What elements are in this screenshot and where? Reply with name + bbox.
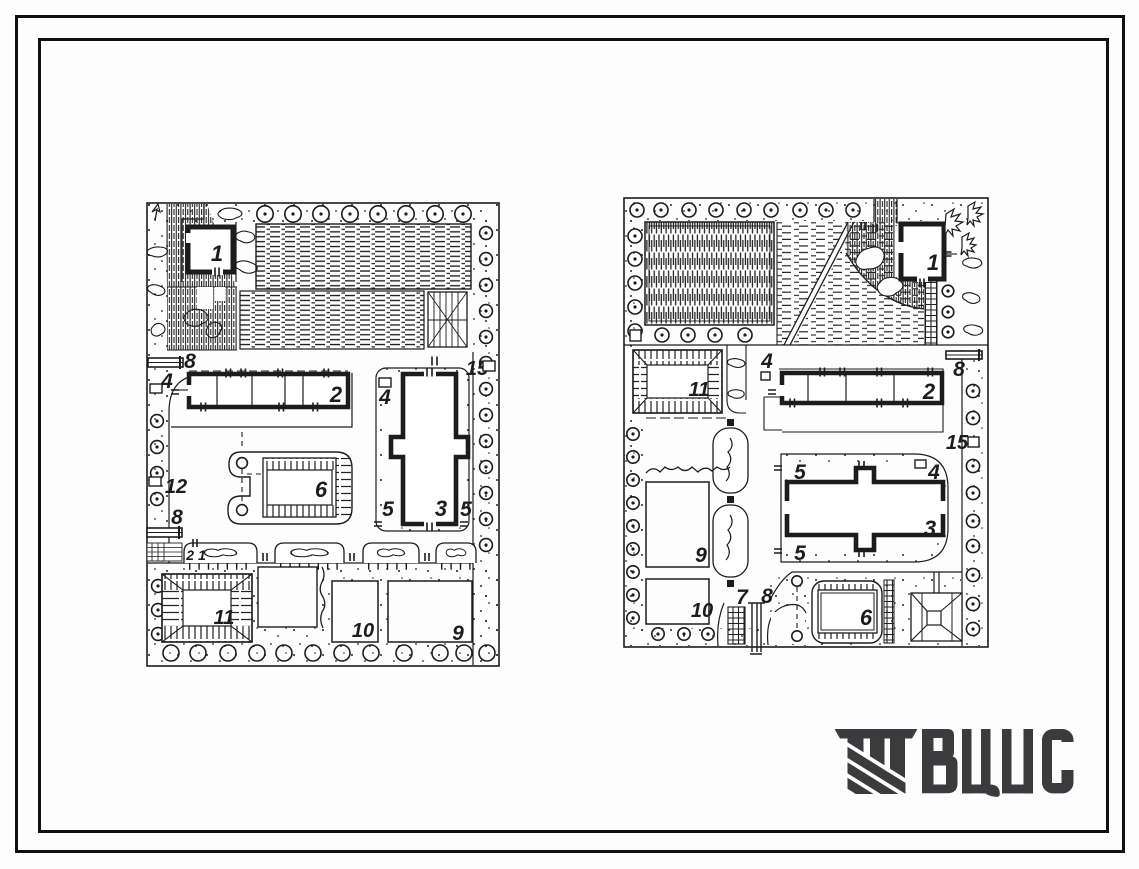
svg-text:6: 6 [315, 477, 328, 502]
svg-text:8: 8 [953, 358, 965, 381]
svg-text:10: 10 [691, 600, 713, 622]
svg-text:4: 4 [378, 386, 391, 409]
svg-text:2: 2 [922, 379, 936, 404]
svg-text:1: 1 [211, 241, 223, 266]
svg-text:7: 7 [736, 586, 749, 609]
svg-text:8: 8 [171, 506, 183, 529]
svg-text:1: 1 [927, 250, 939, 275]
svg-text:2 1: 2 1 [185, 547, 206, 563]
svg-text:10: 10 [352, 620, 374, 642]
svg-text:5: 5 [794, 461, 806, 484]
svg-text:5: 5 [460, 498, 472, 521]
svg-text:5: 5 [382, 498, 394, 521]
svg-text:8: 8 [184, 350, 196, 373]
svg-text:4: 4 [760, 350, 773, 373]
svg-text:5: 5 [794, 542, 806, 565]
svg-text:6: 6 [860, 605, 873, 630]
svg-text:3: 3 [924, 516, 936, 541]
svg-text:3: 3 [435, 496, 447, 521]
svg-text:15: 15 [946, 432, 969, 454]
svg-text:2: 2 [329, 382, 343, 407]
svg-text:9: 9 [695, 544, 707, 567]
svg-text:11: 11 [214, 607, 235, 629]
svg-text:9: 9 [452, 622, 464, 645]
svg-text:4: 4 [927, 461, 940, 484]
svg-text:11: 11 [689, 379, 710, 401]
svg-text:12: 12 [165, 476, 187, 498]
